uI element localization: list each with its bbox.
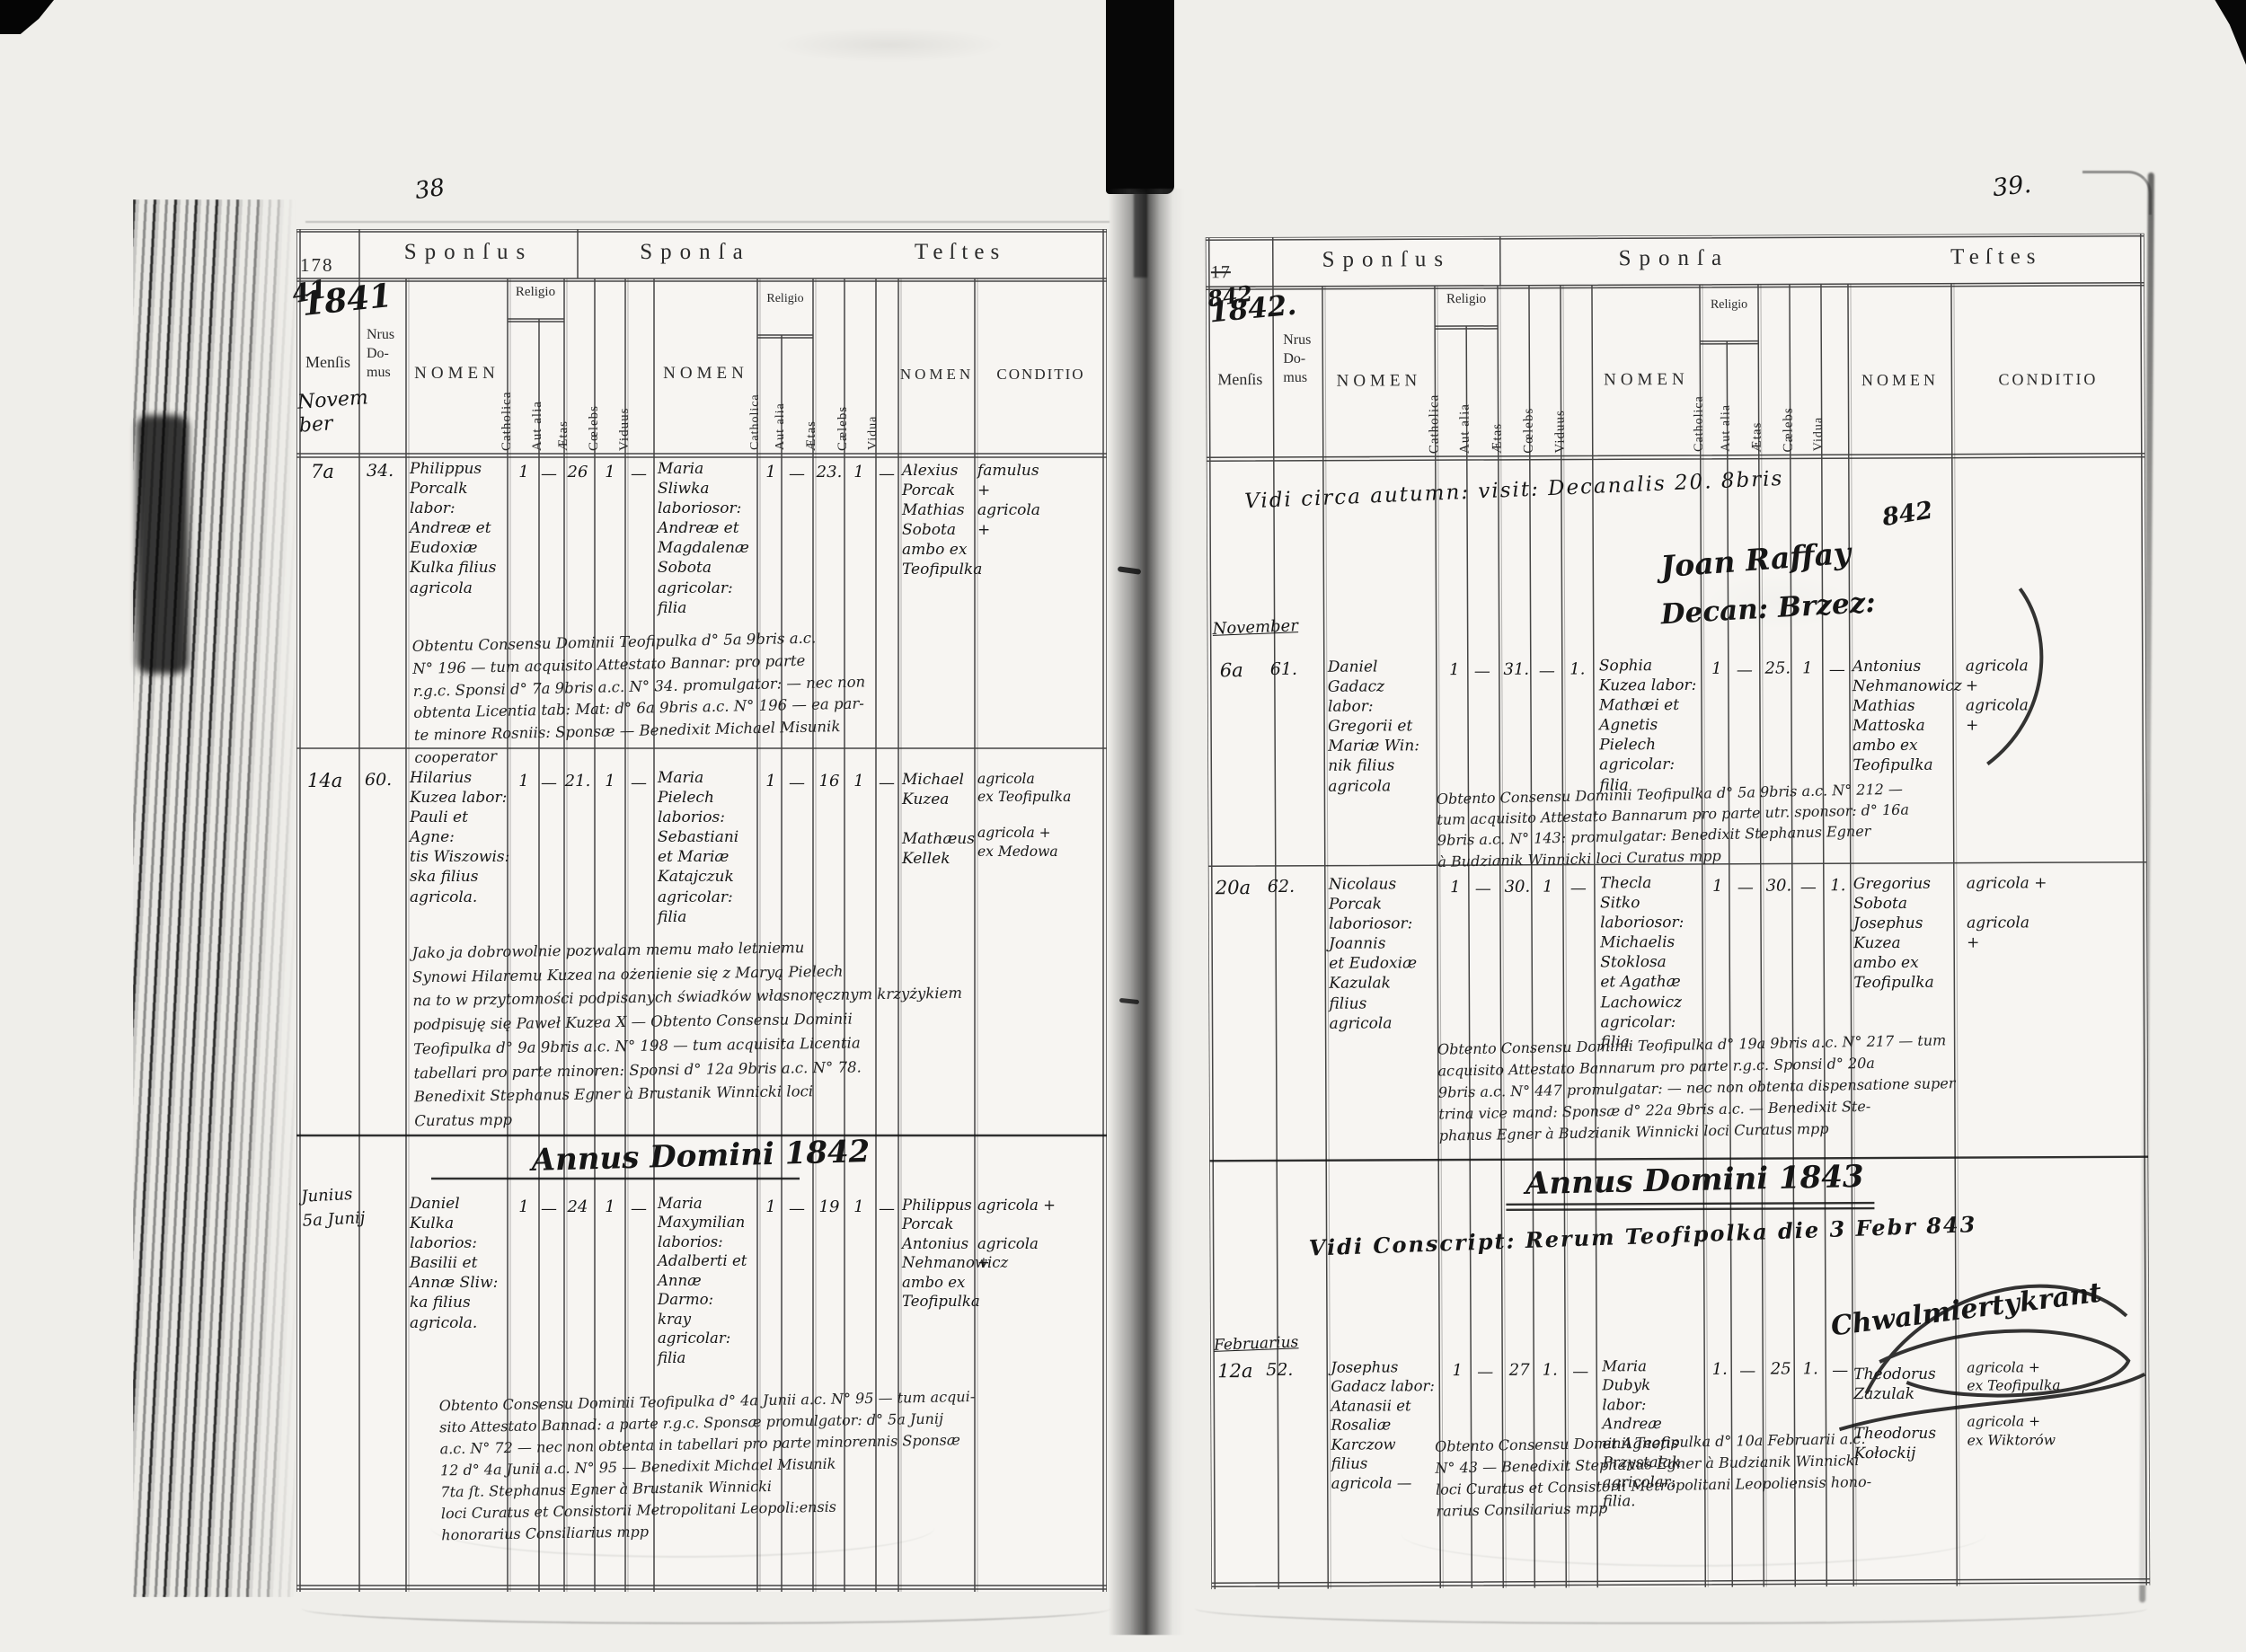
col-mensis: Menſis bbox=[1207, 370, 1272, 389]
bride-caelebs: 1 bbox=[846, 463, 871, 481]
bride-aetas: 25 bbox=[1765, 1359, 1796, 1378]
col-aetas-sponsa: Ætas bbox=[804, 420, 819, 451]
col-nomen-sponsus: NOMEN bbox=[1322, 371, 1435, 392]
bride-name: Thecla Sitko laboriosor: Michaelis Stokl… bbox=[1600, 873, 1702, 1052]
bride-name: Maria Pielech laborios: Sebastiani et Ma… bbox=[658, 768, 756, 927]
groom-catholica: 1 bbox=[512, 1197, 535, 1216]
witness-names: Michael Kuzea Mathæus Kellek bbox=[902, 770, 977, 869]
groom-catholica: 1 bbox=[512, 772, 535, 791]
col-coelebs-sponsus: Cœlebs bbox=[587, 405, 602, 451]
groom-viduus: — bbox=[627, 773, 650, 792]
col-aut-alia-sponsus: Aut alia bbox=[530, 401, 545, 451]
bride-caelebs: — bbox=[1796, 878, 1821, 897]
col-catholica-sponsa: Catholica bbox=[1692, 395, 1706, 452]
bottom-edge-shadow-right bbox=[1195, 1590, 2147, 1624]
header-testes: Teſtes bbox=[813, 240, 1107, 265]
parental-consent-note: Jako ja dobrowolnie pozwalam memu mało l… bbox=[412, 932, 1101, 1134]
col-vidua-sponsa: Vidua bbox=[866, 416, 880, 450]
bride-catholica: 1 bbox=[1706, 877, 1729, 896]
record-note: Obtento Consensu Dominii Teofipulka d° 1… bbox=[1435, 1423, 2146, 1522]
bride-aut-alia: — bbox=[1733, 879, 1758, 897]
col-coelebs-sponsus: Cœlebs bbox=[1522, 408, 1537, 454]
record-house-no: 61. bbox=[1270, 659, 1297, 679]
groom-viduus: — bbox=[1568, 1362, 1593, 1381]
witness-names: Philippus Porcak Antonius Nehmanowicz am… bbox=[902, 1196, 977, 1312]
groom-name: Nicolaus Porcak laboriosor: Joannis et E… bbox=[1329, 874, 1436, 1033]
groom-aut-alia: — bbox=[1472, 1363, 1498, 1382]
bride-aetas: 19 bbox=[814, 1197, 844, 1216]
bride-aetas: 25. bbox=[1763, 658, 1793, 677]
register-page-right: 17842 Sponſus Sponſa Teſtes 1842. Menſis… bbox=[1206, 234, 2151, 1590]
binding-ribbon bbox=[1106, 0, 1174, 194]
header-sponsa: Sponſa bbox=[578, 240, 813, 265]
bride-catholica: 1 bbox=[760, 463, 782, 481]
bottom-edge-shadow-left bbox=[302, 1592, 1110, 1624]
record-house-no: 60. bbox=[365, 770, 392, 790]
record-month-day: Junius 5a Junij bbox=[301, 1181, 366, 1233]
groom-caelebs: 1 bbox=[598, 463, 622, 481]
bride-aetas: 23. bbox=[814, 463, 844, 481]
bride-catholica: 1. bbox=[1708, 1360, 1731, 1379]
bride-aetas: 16 bbox=[814, 772, 844, 791]
bride-vidua: — bbox=[875, 1199, 898, 1218]
col-nomen-testes: NOMEN bbox=[1848, 371, 1951, 391]
month-label: November bbox=[1212, 616, 1298, 639]
groom-catholica: 1 bbox=[1443, 660, 1466, 679]
groom-viduus: 1. bbox=[1565, 659, 1590, 678]
witness-conditio: agricola + agricola + bbox=[1966, 656, 2136, 736]
corner-mark-top-left bbox=[0, 0, 54, 34]
bride-catholica: 1 bbox=[1705, 659, 1729, 678]
groom-name: Daniel Kulka laborios: Basilii et Annæ S… bbox=[410, 1194, 510, 1333]
col-vidua-sponsa: Vidua bbox=[1812, 417, 1826, 451]
record-day: 7a bbox=[311, 461, 334, 482]
col-religio-sponsa: Religio bbox=[756, 292, 814, 306]
witness-conditio: agricola + agricola + bbox=[1967, 873, 2137, 953]
col-religio-sponsus: Religio bbox=[1435, 292, 1498, 307]
groom-catholica: 1 bbox=[1446, 1361, 1469, 1380]
record-house-no: 52. bbox=[1266, 1360, 1293, 1380]
groom-catholica: 1 bbox=[512, 463, 535, 481]
bride-vidua: 1. bbox=[1826, 876, 1850, 895]
witness-conditio: agricola + agricola + bbox=[977, 1196, 1105, 1273]
col-religio-sponsa: Religio bbox=[1700, 298, 1758, 313]
col-aut-alia-sponsa: Aut alia bbox=[1720, 404, 1734, 452]
header-sponsus: Sponſus bbox=[359, 240, 578, 265]
col-caelebs-sponsa: Cælebs bbox=[1782, 407, 1797, 452]
groom-aut-alia: — bbox=[1470, 662, 1495, 681]
groom-aetas: 30. bbox=[1501, 878, 1534, 897]
groom-caelebs: — bbox=[1534, 662, 1560, 681]
bride-aetas: 30. bbox=[1764, 876, 1794, 895]
corner-mark-top-right bbox=[2203, 0, 2246, 65]
record-note: Obtento Consensu Dominii Teofipulka d° 4… bbox=[439, 1384, 1098, 1547]
header-testes: Teſtes bbox=[1848, 244, 2144, 270]
groom-caelebs: 1 bbox=[598, 1197, 622, 1216]
bride-vidua: — bbox=[875, 464, 898, 483]
bride-caelebs: 1 bbox=[846, 772, 871, 791]
bride-vidua: — bbox=[875, 773, 898, 792]
record-day: 6a bbox=[1220, 659, 1243, 681]
col-nrus-domus: Nrus Do- mus bbox=[367, 326, 394, 382]
groom-name: Daniel Gadacz labor: Gregorii et Mariæ W… bbox=[1328, 657, 1435, 796]
bride-aut-alia: — bbox=[783, 1199, 810, 1218]
groom-name: Philippus Porcalk labor: Andreæ et Eudox… bbox=[410, 459, 508, 598]
col-aut-alia-sponsus: Aut alia bbox=[1458, 403, 1473, 454]
col-nomen-sponsa: NOMEN bbox=[654, 364, 757, 384]
groom-aut-alia: — bbox=[537, 773, 561, 792]
header-sponsus: Sponſus bbox=[1273, 247, 1500, 273]
bride-caelebs: 1 bbox=[846, 1197, 871, 1216]
folio-number-left: 38 bbox=[413, 174, 447, 205]
groom-caelebs: 1 bbox=[598, 772, 622, 791]
col-nrus-domus: Nrus Do- mus bbox=[1283, 331, 1311, 388]
witness-names: Alexius Porcak Mathias Sobota ambo ex Te… bbox=[902, 461, 977, 580]
groom-viduus: — bbox=[1566, 879, 1591, 897]
col-nomen-testes: NOMEN bbox=[897, 366, 977, 384]
record-day: 20a bbox=[1216, 877, 1251, 898]
groom-caelebs: 1 bbox=[1535, 878, 1561, 897]
record-day: 12a bbox=[1217, 1360, 1252, 1382]
col-mensis: Menſis bbox=[298, 353, 358, 372]
groom-name: Josephus Gadacz labor: Atanasii et Rosal… bbox=[1331, 1357, 1444, 1493]
bride-vidua: — bbox=[1828, 1361, 1852, 1380]
month-script: Novem ber bbox=[296, 386, 370, 438]
groom-viduus: — bbox=[627, 464, 650, 483]
witness-names: Antonius Nehmanowicz Mathias Mattoska am… bbox=[1853, 657, 1954, 776]
bride-vidua: — bbox=[1826, 660, 1849, 679]
col-catholica-sponsus: Catholica bbox=[1427, 394, 1442, 455]
left-page-top-edge bbox=[305, 221, 1110, 223]
bride-name: Sophia Kuzea labor: Mathæi et Agnetis Pi… bbox=[1599, 656, 1701, 795]
bride-name: Maria Maxymilian laborios: Adalberti et … bbox=[658, 1194, 758, 1367]
col-religio-sponsus: Religio bbox=[507, 285, 564, 300]
groom-aetas: 21. bbox=[562, 772, 593, 791]
bride-catholica: 1 bbox=[760, 1197, 782, 1216]
page-stack-dark-blot bbox=[137, 415, 189, 674]
bride-aut-alia: — bbox=[783, 773, 810, 792]
bride-name: Maria Sliwka laboriosor: Andreæ et Magda… bbox=[658, 459, 756, 618]
bride-catholica: 1 bbox=[760, 772, 782, 791]
year-printed: 17 bbox=[1211, 262, 1231, 282]
register-page-left: 17841 Sponſus Sponſa Teſtes 1841 Menſis … bbox=[296, 229, 1107, 1592]
col-conditio: CONDITIO bbox=[1951, 370, 2144, 390]
col-conditio: CONDITIO bbox=[975, 366, 1107, 384]
record-note: Obtentu Consensu Dominii Teofipulka d° 5… bbox=[412, 622, 1100, 769]
bride-aut-alia: — bbox=[1735, 1362, 1760, 1381]
witness-conditio: agricola ex Teofipulka agricola + ex Med… bbox=[977, 770, 1105, 861]
bride-aut-alia: — bbox=[783, 464, 810, 483]
bride-caelebs: 1 bbox=[1795, 658, 1820, 677]
witness-conditio: famulus + agricola + bbox=[977, 461, 1105, 540]
groom-caelebs: 1. bbox=[1537, 1361, 1562, 1380]
record-house-no: 62. bbox=[1268, 877, 1295, 897]
right-page-corner-curve bbox=[2082, 171, 2152, 215]
col-aetas-sponsus: Ætas bbox=[556, 420, 571, 451]
folio-number-right: 39. bbox=[1991, 171, 2032, 202]
groom-aetas: 31. bbox=[1500, 660, 1533, 679]
col-catholica-sponsa: Catholica bbox=[748, 393, 763, 450]
col-catholica-sponsus: Catholica bbox=[500, 392, 515, 451]
record-day: 14a bbox=[307, 770, 342, 791]
groom-aetas: 24 bbox=[562, 1197, 593, 1216]
groom-aetas: 26 bbox=[562, 463, 593, 481]
groom-aut-alia: — bbox=[1471, 879, 1496, 898]
col-aut-alia-sponsa: Aut alia bbox=[774, 402, 788, 450]
groom-name: Hilarius Kuzea labor: Pauli et Agne: tis… bbox=[410, 768, 510, 907]
groom-aetas: 27 bbox=[1503, 1361, 1535, 1380]
record-note: Obtento Consensu Dominii Teofipulka d° 1… bbox=[1437, 1026, 2149, 1146]
record-house-no: 34. bbox=[367, 461, 393, 481]
col-aetas-sponsus: Ætas bbox=[1490, 423, 1506, 454]
groom-aut-alia: — bbox=[537, 464, 561, 483]
col-viduus-sponsus: Viduus bbox=[617, 408, 632, 451]
header-sponsa: Sponſa bbox=[1500, 245, 1848, 272]
groom-aut-alia: — bbox=[537, 1199, 561, 1218]
paper-smudge bbox=[773, 27, 1006, 63]
bride-aut-alia: — bbox=[1732, 661, 1757, 680]
col-caelebs-sponsa: Cælebs bbox=[836, 406, 851, 451]
col-aetas-sponsa: Ætas bbox=[1750, 422, 1765, 453]
scanned-register-spread: 38 39. 17841 Sponſus Sponſa Teſte bbox=[0, 0, 2246, 1652]
page-stack-edge bbox=[133, 199, 300, 1597]
col-nomen-sponsa: NOMEN bbox=[1592, 370, 1700, 391]
groom-viduus: — bbox=[627, 1199, 650, 1218]
groom-catholica: 1 bbox=[1444, 878, 1467, 897]
gutter-shadow bbox=[1109, 189, 1184, 1635]
witness-names: Gregorius Sobota Josephus Kuzea ambo ex … bbox=[1853, 874, 1955, 994]
col-viduus-sponsus: Viduus bbox=[1553, 410, 1569, 454]
year-printed: 178 bbox=[300, 254, 334, 276]
col-nomen-sponsus: NOMEN bbox=[406, 364, 508, 384]
bride-caelebs: 1. bbox=[1798, 1359, 1823, 1378]
record-note: Obtento Consensu Dominii Teofipulka d° 5… bbox=[1437, 773, 2139, 872]
month-label: Februarius bbox=[1214, 1333, 1299, 1355]
